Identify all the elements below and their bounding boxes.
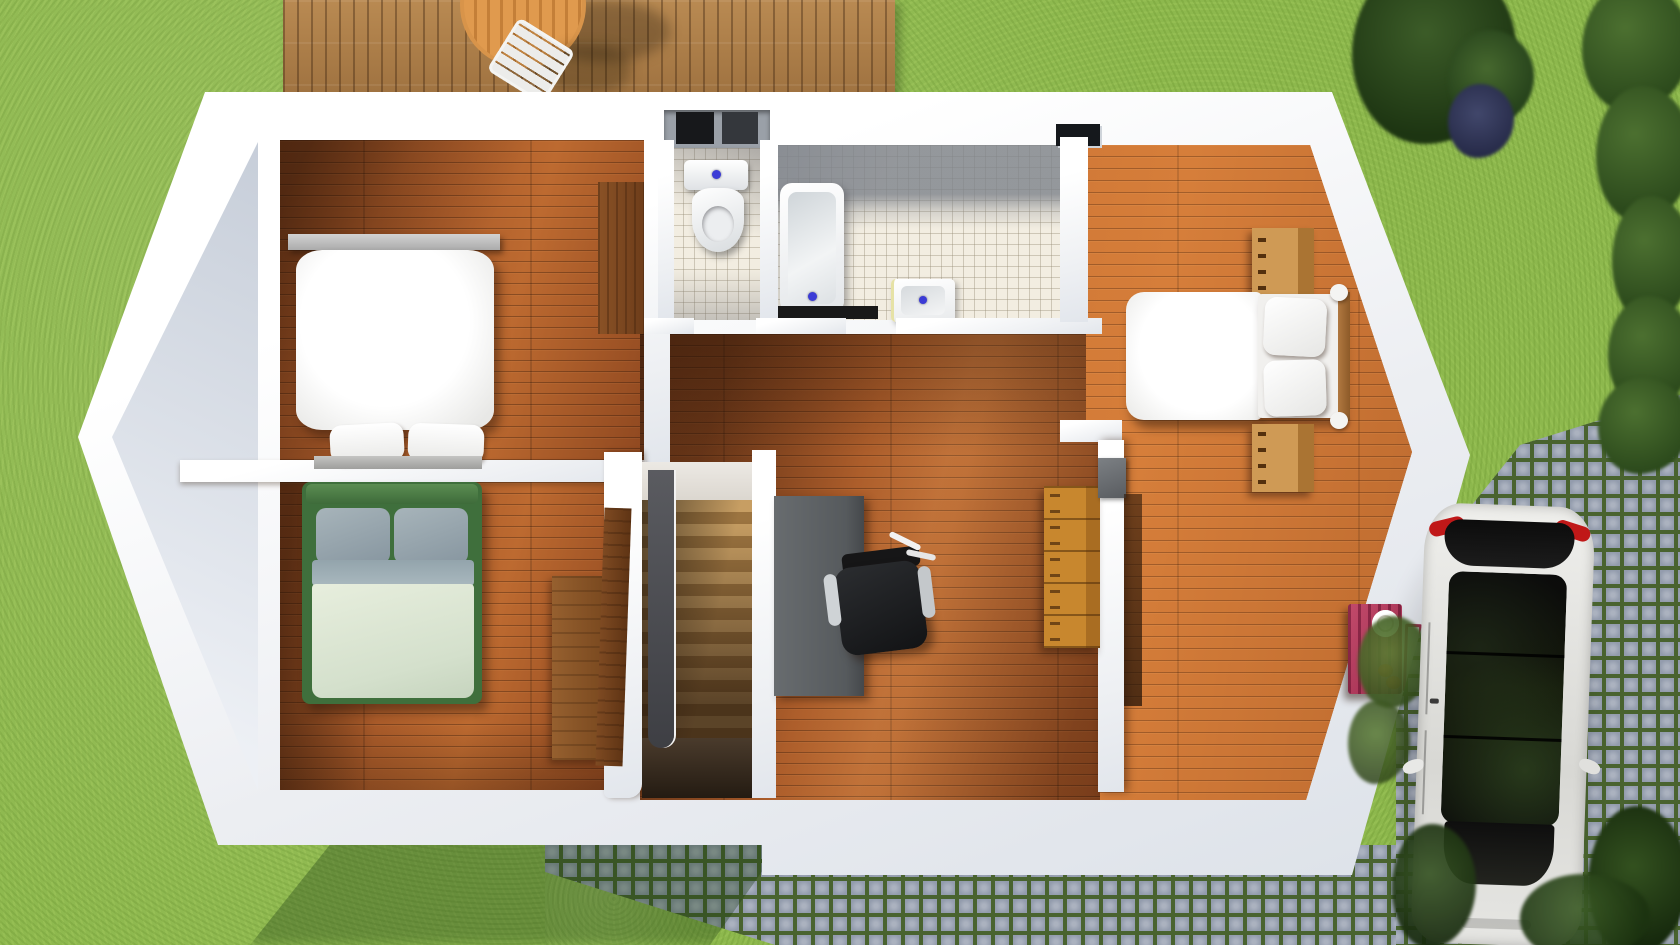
bathtub-basin bbox=[788, 192, 836, 304]
hedge-right-5 bbox=[1598, 378, 1680, 474]
nightstand-bottom-knobs bbox=[1258, 432, 1266, 484]
car-door-handle bbox=[1430, 698, 1439, 703]
car-roof-glass bbox=[1441, 571, 1568, 827]
bed3-post-bottom bbox=[1330, 412, 1348, 429]
bedroom1-wardrobe-door bbox=[598, 182, 644, 334]
bed3-duvet bbox=[1126, 292, 1262, 420]
bed3-headboard bbox=[1338, 292, 1350, 420]
toilet-flush-button bbox=[712, 170, 721, 179]
stair-railing bbox=[648, 470, 674, 748]
bathtub-drain bbox=[808, 292, 817, 301]
ivy-car-left bbox=[1392, 824, 1476, 945]
wall-wc-left bbox=[658, 140, 674, 320]
wall-bath-south-2 bbox=[756, 318, 846, 334]
bed2-duvet bbox=[312, 584, 474, 698]
wall-wc-right bbox=[760, 140, 778, 320]
closet-sliding-door-right bbox=[722, 112, 758, 144]
nightstand-top-knobs bbox=[1258, 238, 1266, 290]
bed3-pillow-top bbox=[1263, 296, 1328, 357]
bed1-duvet bbox=[296, 250, 494, 430]
closet-sliding-door-left bbox=[676, 112, 714, 144]
bedroom-right-open-door bbox=[1124, 494, 1142, 706]
wall-bath-south-1 bbox=[640, 318, 694, 334]
bed2-headboard bbox=[306, 484, 478, 504]
car-rear-window bbox=[1444, 519, 1576, 570]
toilet-seat-opening bbox=[702, 206, 734, 242]
wall-hall-stub bbox=[1060, 420, 1122, 442]
bed1-headboard-shelf bbox=[288, 234, 500, 250]
wall-bath-right bbox=[1060, 137, 1088, 322]
office-chair-seat bbox=[833, 559, 929, 657]
house-shadow-on-lawn bbox=[250, 832, 790, 945]
bed1-foot-bench bbox=[314, 456, 482, 469]
bed3-pillow-bottom bbox=[1263, 359, 1327, 417]
wall-shelf-grey bbox=[1098, 458, 1126, 498]
bed2-pillow-right bbox=[394, 508, 468, 564]
washbasin-drain bbox=[919, 296, 927, 304]
wall-stair-right bbox=[752, 450, 776, 798]
floor-plan-render bbox=[0, 0, 1680, 945]
bed2-blanket-fold bbox=[312, 560, 474, 586]
bed3-post-top bbox=[1330, 284, 1348, 301]
bedroom2-wardrobe bbox=[552, 576, 602, 760]
chest-drawer-knobs bbox=[1050, 494, 1060, 642]
bed2-pillow-left bbox=[316, 508, 390, 564]
